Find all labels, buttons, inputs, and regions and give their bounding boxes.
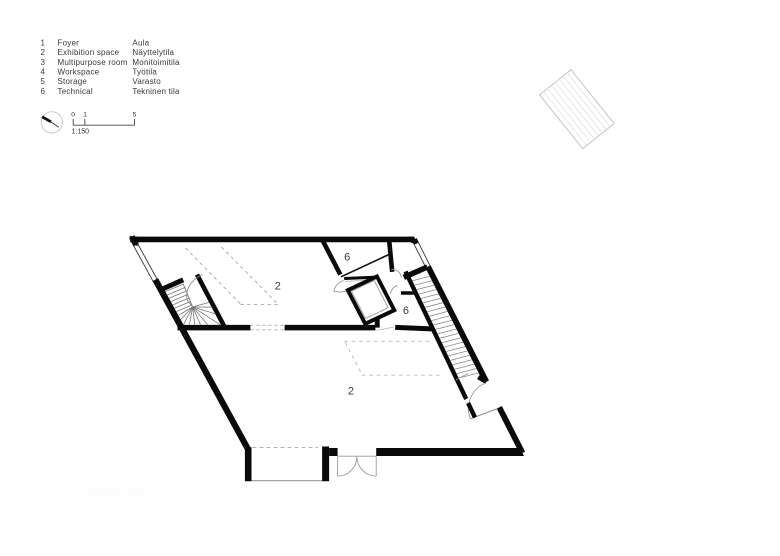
- svg-text:1: 1: [83, 112, 87, 119]
- svg-text:Monitoimitila: Monitoimitila: [132, 58, 180, 67]
- svg-text:Tekninen tila: Tekninen tila: [132, 87, 180, 96]
- svg-text:2: 2: [275, 280, 281, 292]
- svg-text:Näyttelytila: Näyttelytila: [132, 48, 174, 57]
- svg-text:Aula: Aula: [132, 39, 149, 48]
- svg-text:3: 3: [41, 58, 46, 67]
- svg-text:Multipurpose room: Multipurpose room: [58, 58, 128, 67]
- svg-text:2: 2: [41, 48, 46, 57]
- svg-text:Storage: Storage: [58, 77, 88, 86]
- svg-text:5: 5: [133, 112, 137, 119]
- svg-text:1: 1: [41, 39, 46, 48]
- svg-text:Varasto: Varasto: [132, 77, 161, 86]
- svg-text:0: 0: [71, 112, 75, 119]
- svg-text:1:150: 1:150: [72, 129, 90, 136]
- svg-text:Workspace: Workspace: [58, 68, 100, 77]
- svg-text:6: 6: [344, 251, 350, 263]
- svg-text:Työtila: Työtila: [132, 68, 157, 77]
- svg-text:2: 2: [348, 386, 354, 398]
- svg-text:Technical: Technical: [58, 87, 93, 96]
- svg-text:Exhibition space: Exhibition space: [58, 48, 120, 57]
- svg-text:Foyer: Foyer: [58, 39, 80, 48]
- svg-text:5: 5: [41, 77, 46, 86]
- svg-text:6: 6: [403, 305, 409, 317]
- svg-text:4: 4: [41, 68, 46, 77]
- svg-text:6: 6: [41, 87, 46, 96]
